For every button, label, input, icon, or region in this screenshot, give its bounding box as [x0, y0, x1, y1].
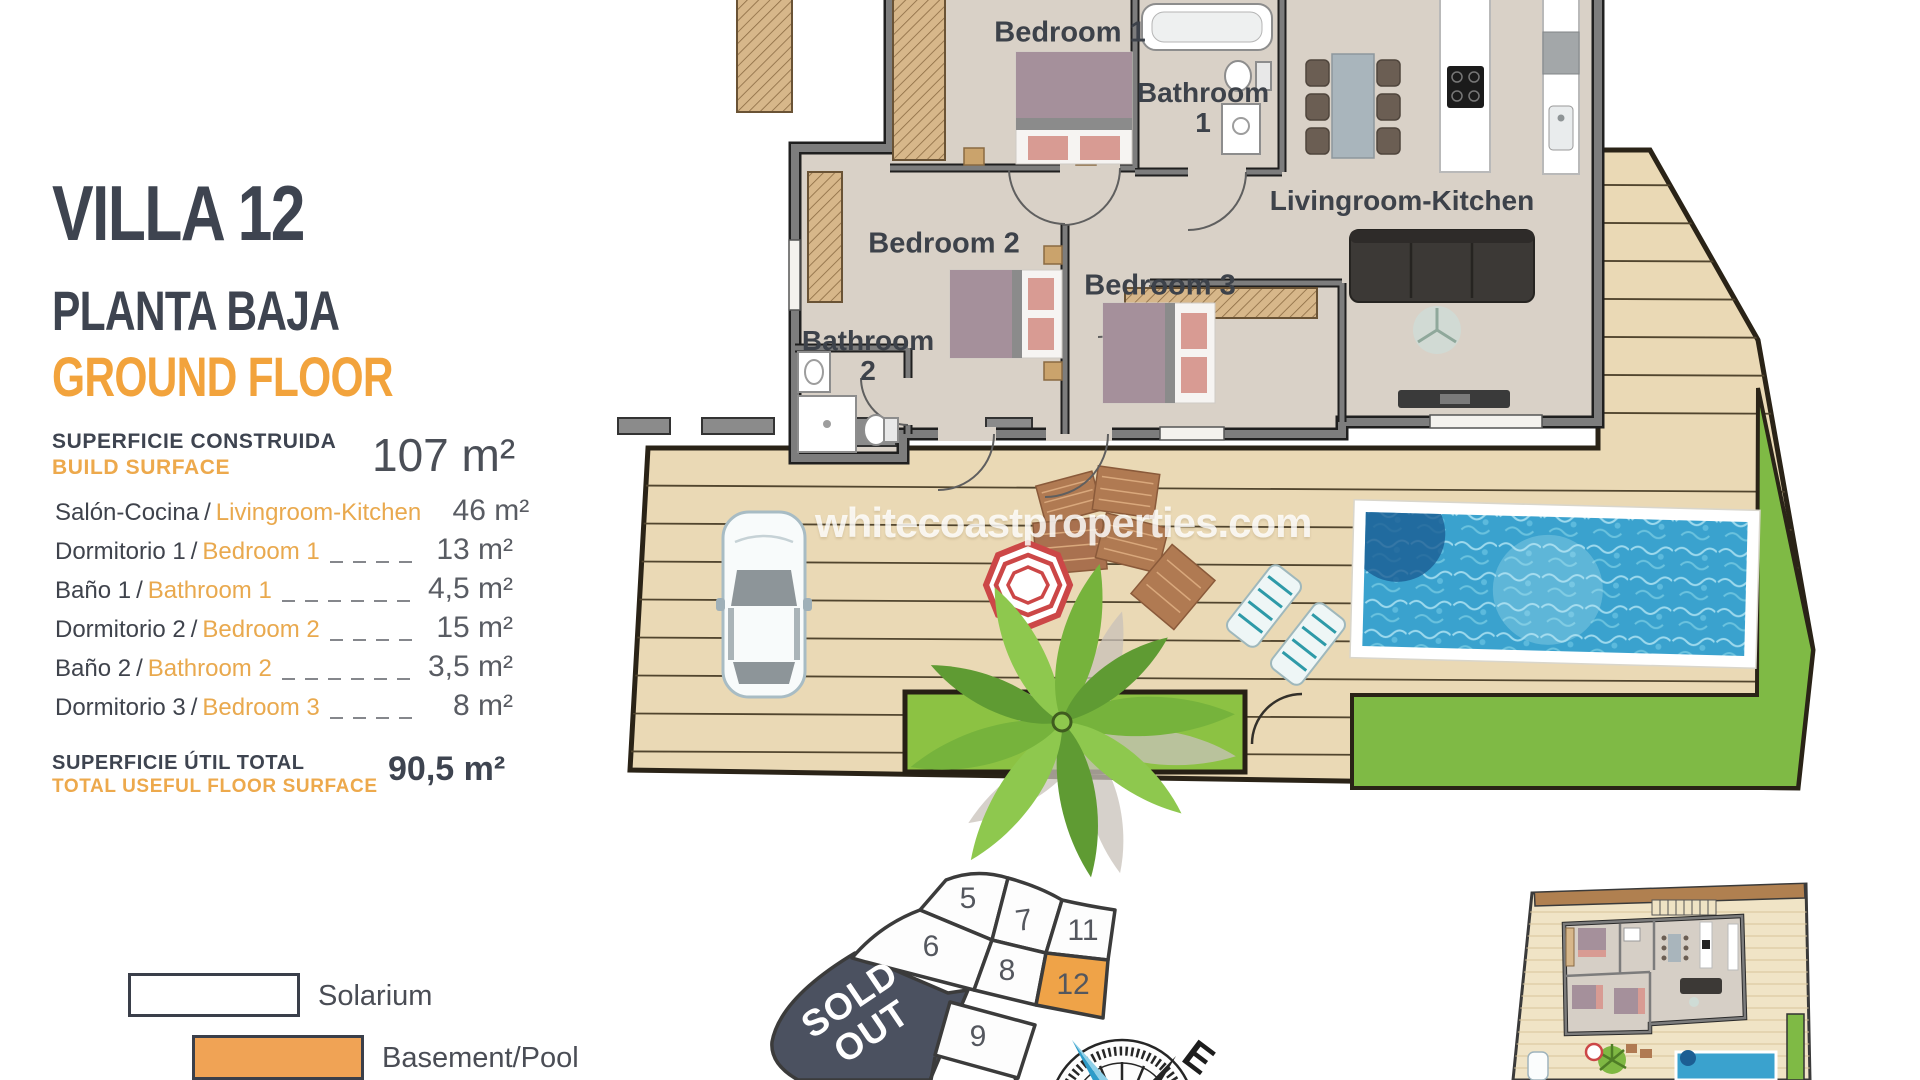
room-row: Dormitorio 2/Bedroom 2 15 m²: [55, 611, 513, 650]
subtitle-spanish: PLANTA BAJA: [52, 278, 339, 343]
compass-icon: [1050, 1040, 1194, 1080]
room-row: Baño 2/Bathroom 2 3,5 m²: [55, 650, 513, 689]
room-row: Dormitorio 3/Bedroom 3 8 m²: [55, 689, 513, 728]
dotted-leader: [282, 678, 415, 680]
dotted-leader: [330, 717, 415, 719]
legend-swatch-solarium: [128, 973, 300, 1017]
build-surface-label-en: BUILD SURFACE: [52, 456, 230, 480]
total-label-en: TOTAL USEFUL FLOOR SURFACE: [52, 776, 378, 798]
subtitle-english: GROUND FLOOR: [52, 344, 393, 409]
page-title: VILLA 12: [52, 168, 304, 259]
room-label-bedroom1: Bedroom 1: [994, 17, 1145, 48]
room-name-en: Bedroom 2: [202, 616, 319, 644]
room-name-es: Dormitorio 2: [55, 616, 186, 644]
room-area: 4,5 m²: [423, 572, 513, 606]
room-label-bathroom2: Bathroom 2: [802, 326, 934, 386]
plot-number-11: 11: [1067, 914, 1098, 948]
room-label-bedroom3: Bedroom 3: [1084, 270, 1235, 301]
room-name-es: Baño 1: [55, 577, 131, 605]
plot-number-8: 8: [999, 954, 1016, 988]
room-label-bathroom1: Bathroom 1: [1137, 78, 1269, 138]
room-label-bedroom2: Bedroom 2: [868, 228, 1019, 259]
total-label-es: SUPERFICIE ÚTIL TOTAL: [52, 752, 305, 775]
room-list: Salón-Cocina/Livingroom-Kitchen 46 m² Do…: [55, 494, 513, 728]
room-name-en: Bathroom 1: [148, 577, 272, 605]
room-area: 8 m²: [423, 689, 513, 723]
room-name-en: Livingroom-Kitchen: [216, 499, 421, 527]
room-name-en: Bedroom 3: [202, 694, 319, 722]
room-label-living: Livingroom-Kitchen: [1270, 186, 1534, 216]
ceiling-fan-icon: [1413, 306, 1461, 354]
room-name-es: Baño 2: [55, 655, 131, 683]
room-area: 13 m²: [423, 533, 513, 567]
sofa: [1350, 230, 1534, 302]
room-row: Salón-Cocina/Livingroom-Kitchen 46 m²: [55, 494, 513, 533]
plot-number-9: 9: [970, 1020, 987, 1054]
room-name-en: Bathroom 2: [148, 655, 272, 683]
build-surface-value: 107 m²: [372, 428, 515, 482]
dining-table: [1306, 54, 1400, 158]
room-row: Baño 1/Bathroom 1 4,5 m²: [55, 572, 513, 611]
room-name-es: Dormitorio 3: [55, 694, 186, 722]
plot-number-6: 6: [923, 930, 940, 964]
room-area: 3,5 m²: [423, 650, 513, 684]
total-value: 90,5 m²: [388, 750, 505, 789]
room-name-en: Bedroom 1: [202, 538, 319, 566]
watermark: whitecoastproperties.com: [815, 499, 1311, 547]
room-area: 46 m²: [439, 494, 529, 528]
dotted-leader: [282, 600, 415, 602]
legend-label-basement-pool: Basement/Pool: [382, 1042, 579, 1075]
room-name-es: Salón-Cocina: [55, 499, 199, 527]
house: [618, 0, 1598, 497]
pool: [1346, 485, 1760, 669]
room-area: 15 m²: [423, 611, 513, 645]
legend-label-solarium: Solarium: [318, 980, 432, 1013]
dotted-leader: [330, 639, 415, 641]
plot-number-5: 5: [960, 882, 977, 916]
room-name-es: Dormitorio 1: [55, 538, 186, 566]
plot-number-12: 12: [1056, 968, 1089, 1002]
floorplan-page: VILLA 12 PLANTA BAJA GROUND FLOOR SUPERF…: [0, 0, 1920, 1080]
legend-swatch-basement-pool: [192, 1035, 364, 1080]
room-row: Dormitorio 1/Bedroom 1 13 m²: [55, 533, 513, 572]
mini-siteplan: [1513, 876, 1810, 1080]
build-surface-label-es: SUPERFICIE CONSTRUIDA: [52, 430, 336, 454]
car: [716, 512, 812, 697]
dotted-leader: [330, 561, 415, 563]
